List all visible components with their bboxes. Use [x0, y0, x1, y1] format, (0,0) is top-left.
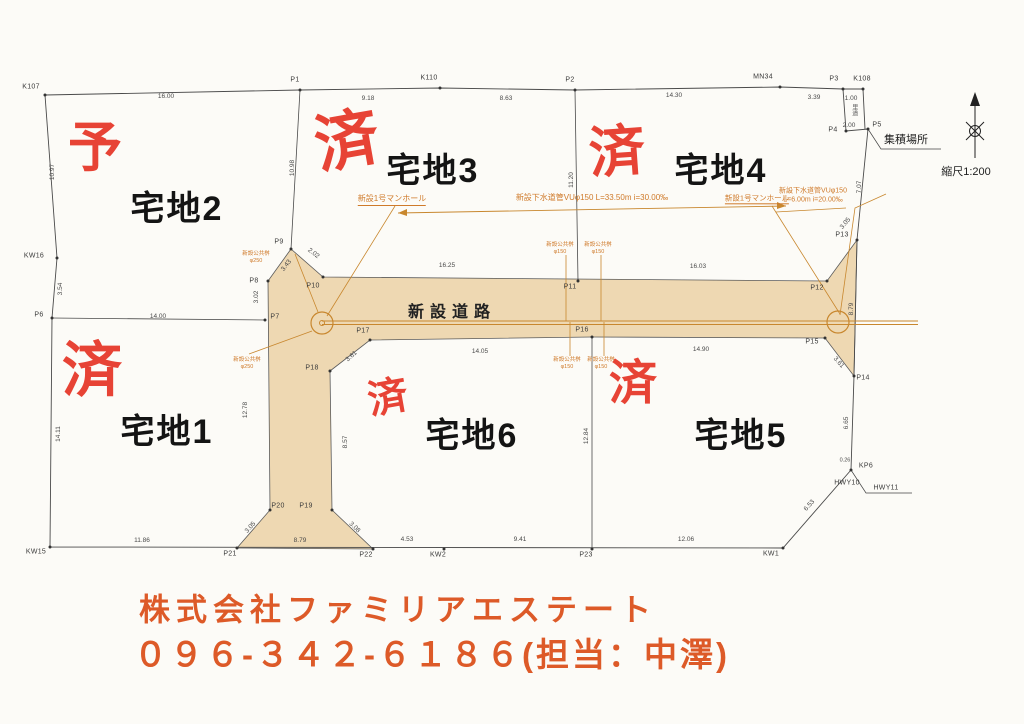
point-label: P4 [828, 127, 837, 134]
point-marker [331, 509, 334, 512]
dimension-label: 8.63 [500, 96, 513, 103]
point-marker [44, 94, 47, 97]
point-label: P16 [575, 327, 588, 334]
point-marker [850, 469, 853, 472]
phone-number: ０９６-３４２-６１８６(担当：中澤) [134, 628, 730, 676]
dimension-label: 16.00 [158, 94, 174, 101]
point-label: P22 [359, 552, 372, 559]
point-label: P2 [565, 77, 574, 84]
point-label: P8 [249, 278, 258, 285]
point-label: K108 [853, 76, 871, 83]
dimension-label: 3.05 [244, 521, 257, 535]
pipe-annotation: 新設下水道管VUφ150 L=33.50m i=30.00‰ [516, 193, 668, 203]
dimension-label: 7.07 [857, 181, 864, 194]
point-marker [443, 548, 446, 551]
dimension-label: 11.86 [134, 538, 150, 545]
dimension-label: 11.20 [569, 172, 576, 188]
point-label: HWY10 [834, 480, 860, 487]
point-marker [56, 257, 59, 260]
point-marker [369, 339, 372, 342]
point-label: KW15 [26, 549, 46, 556]
pipe-annotation: 新設1号マンホール [358, 194, 426, 206]
dimension-label: 16.03 [690, 264, 706, 271]
point-label: HWY11 [873, 485, 898, 492]
point-label: P6 [34, 312, 43, 319]
point-marker [267, 280, 270, 283]
dimension-label: 12.78 [243, 402, 250, 418]
point-marker [577, 280, 580, 283]
point-marker [826, 280, 829, 283]
point-marker [779, 86, 782, 89]
point-marker [845, 130, 848, 133]
point-marker [322, 276, 325, 279]
pipe-annotation: 新設下水道管VUφ150 L=6.00m i=20.00‰ [779, 187, 847, 205]
dimension-label: 6.53 [803, 499, 816, 513]
status-stamp: 済 [587, 122, 647, 182]
point-marker [299, 89, 302, 92]
dimension-label: 8.57 [343, 436, 350, 449]
point-marker [574, 89, 577, 92]
point-marker [867, 128, 870, 131]
point-marker [329, 370, 332, 373]
point-label: P13 [835, 232, 848, 239]
dimension-label: 3.61 [345, 350, 359, 363]
point-label: P14 [856, 375, 869, 382]
point-label: P3 [829, 76, 838, 83]
lot-label: 宅地4 [675, 154, 768, 188]
dimension-label: 3.61 [831, 356, 844, 370]
point-marker [824, 337, 827, 340]
dimension-label: 2.00 [843, 123, 856, 130]
point-marker [236, 547, 239, 550]
dimension-label: 12.84 [584, 428, 591, 444]
dimension-label: 3.08 [347, 521, 361, 534]
pipe-annotation: 新設公共桝 φ150 [553, 357, 581, 371]
status-stamp: 済 [62, 341, 122, 401]
point-label: P19 [299, 503, 312, 510]
dimension-label: 0.26 [840, 458, 851, 464]
lot-label: 宅地3 [387, 154, 480, 188]
point-marker [862, 88, 865, 91]
point-marker [264, 319, 267, 322]
dimension-label: 12.06 [678, 537, 694, 544]
point-label: P23 [579, 552, 592, 559]
lot-label: 宅地1 [121, 415, 214, 449]
dimension-label: 14.05 [472, 349, 488, 356]
dimension-label: 3.05 [839, 217, 852, 231]
status-stamp: 予 [68, 121, 122, 175]
pipe-annotation: 新設公共桝 φ150 [546, 242, 574, 256]
point-marker [290, 248, 293, 251]
road-name-label: 新設道路 [408, 298, 496, 322]
lot-label: 宅地2 [131, 192, 224, 226]
dimension-label: 14.00 [150, 314, 166, 321]
point-label: P17 [356, 328, 369, 335]
point-label: P5 [872, 122, 881, 129]
point-label: KP6 [859, 463, 873, 470]
point-marker [853, 375, 856, 378]
point-label: P20 [271, 503, 284, 510]
status-stamp: 済 [365, 375, 411, 421]
lot-label: 宅地6 [426, 419, 519, 453]
scale-label: 縮尺1:200 [941, 163, 991, 179]
dimension-label: 10.97 [50, 164, 57, 180]
status-stamp: 済 [609, 360, 657, 408]
pipe-annotation: 新設公共桝 φ150 [584, 242, 612, 256]
pipe-annotation: 里道 [849, 104, 857, 116]
point-label: K107 [22, 84, 40, 91]
dimension-label: 4.53 [401, 537, 414, 544]
point-label: MN34 [753, 74, 773, 81]
point-label: P21 [223, 551, 236, 558]
dimension-label: 3.02 [254, 291, 261, 304]
pipe-annotation: 新設公共桝 φ250 [242, 251, 270, 265]
point-label: K110 [420, 75, 437, 82]
point-label: P7 [270, 314, 279, 321]
dimension-label: 14.90 [693, 347, 709, 354]
dimension-label: 8.79 [849, 303, 856, 316]
point-marker [782, 547, 785, 550]
point-marker [856, 239, 859, 242]
pipe-annotation: 新設公共桝 φ250 [233, 357, 261, 371]
point-marker [842, 88, 845, 91]
point-marker [372, 548, 375, 551]
point-label: KW16 [24, 253, 44, 260]
point-marker [269, 509, 272, 512]
pipe-annotation: 新設公共桝 φ150 [587, 357, 615, 371]
point-label: P15 [805, 339, 818, 346]
status-stamp: 済 [310, 104, 384, 178]
point-label: P18 [305, 365, 318, 372]
point-label: P1 [290, 77, 299, 84]
point-marker [49, 546, 52, 549]
dimension-label: 6.65 [844, 417, 851, 430]
dimension-label: 1.00 [845, 96, 858, 103]
point-marker [591, 548, 594, 551]
point-label: KW2 [430, 552, 446, 559]
dimension-label: 3.54 [58, 283, 65, 296]
point-label: P12 [810, 285, 823, 292]
dimension-label: 14.11 [56, 426, 63, 442]
point-label: KW1 [763, 551, 779, 558]
dimension-label: 9.41 [514, 537, 527, 544]
dimension-label: 8.79 [294, 538, 307, 545]
dimension-label: 14.30 [666, 93, 682, 100]
company-name: 株式会社ファミリアエステート [139, 585, 657, 630]
dimension-label: 2.02 [306, 248, 320, 261]
facility-label: 集積場所 [884, 131, 928, 147]
dimension-label: 3.43 [281, 259, 294, 273]
dimension-label: 10.98 [290, 160, 297, 176]
lot-label: 宅地5 [695, 419, 788, 453]
dimension-label: 3.39 [808, 95, 821, 102]
lot-plan-scan: K107P1K110P2MN34P3K108P4P5P13P12P15P14KP… [0, 0, 1024, 724]
point-label: P10 [306, 283, 319, 290]
dimension-label: 16.25 [439, 263, 455, 270]
point-marker [439, 87, 442, 90]
point-label: P9 [274, 239, 283, 246]
point-label: P11 [564, 284, 577, 291]
point-marker [51, 317, 54, 320]
point-marker [591, 336, 594, 339]
